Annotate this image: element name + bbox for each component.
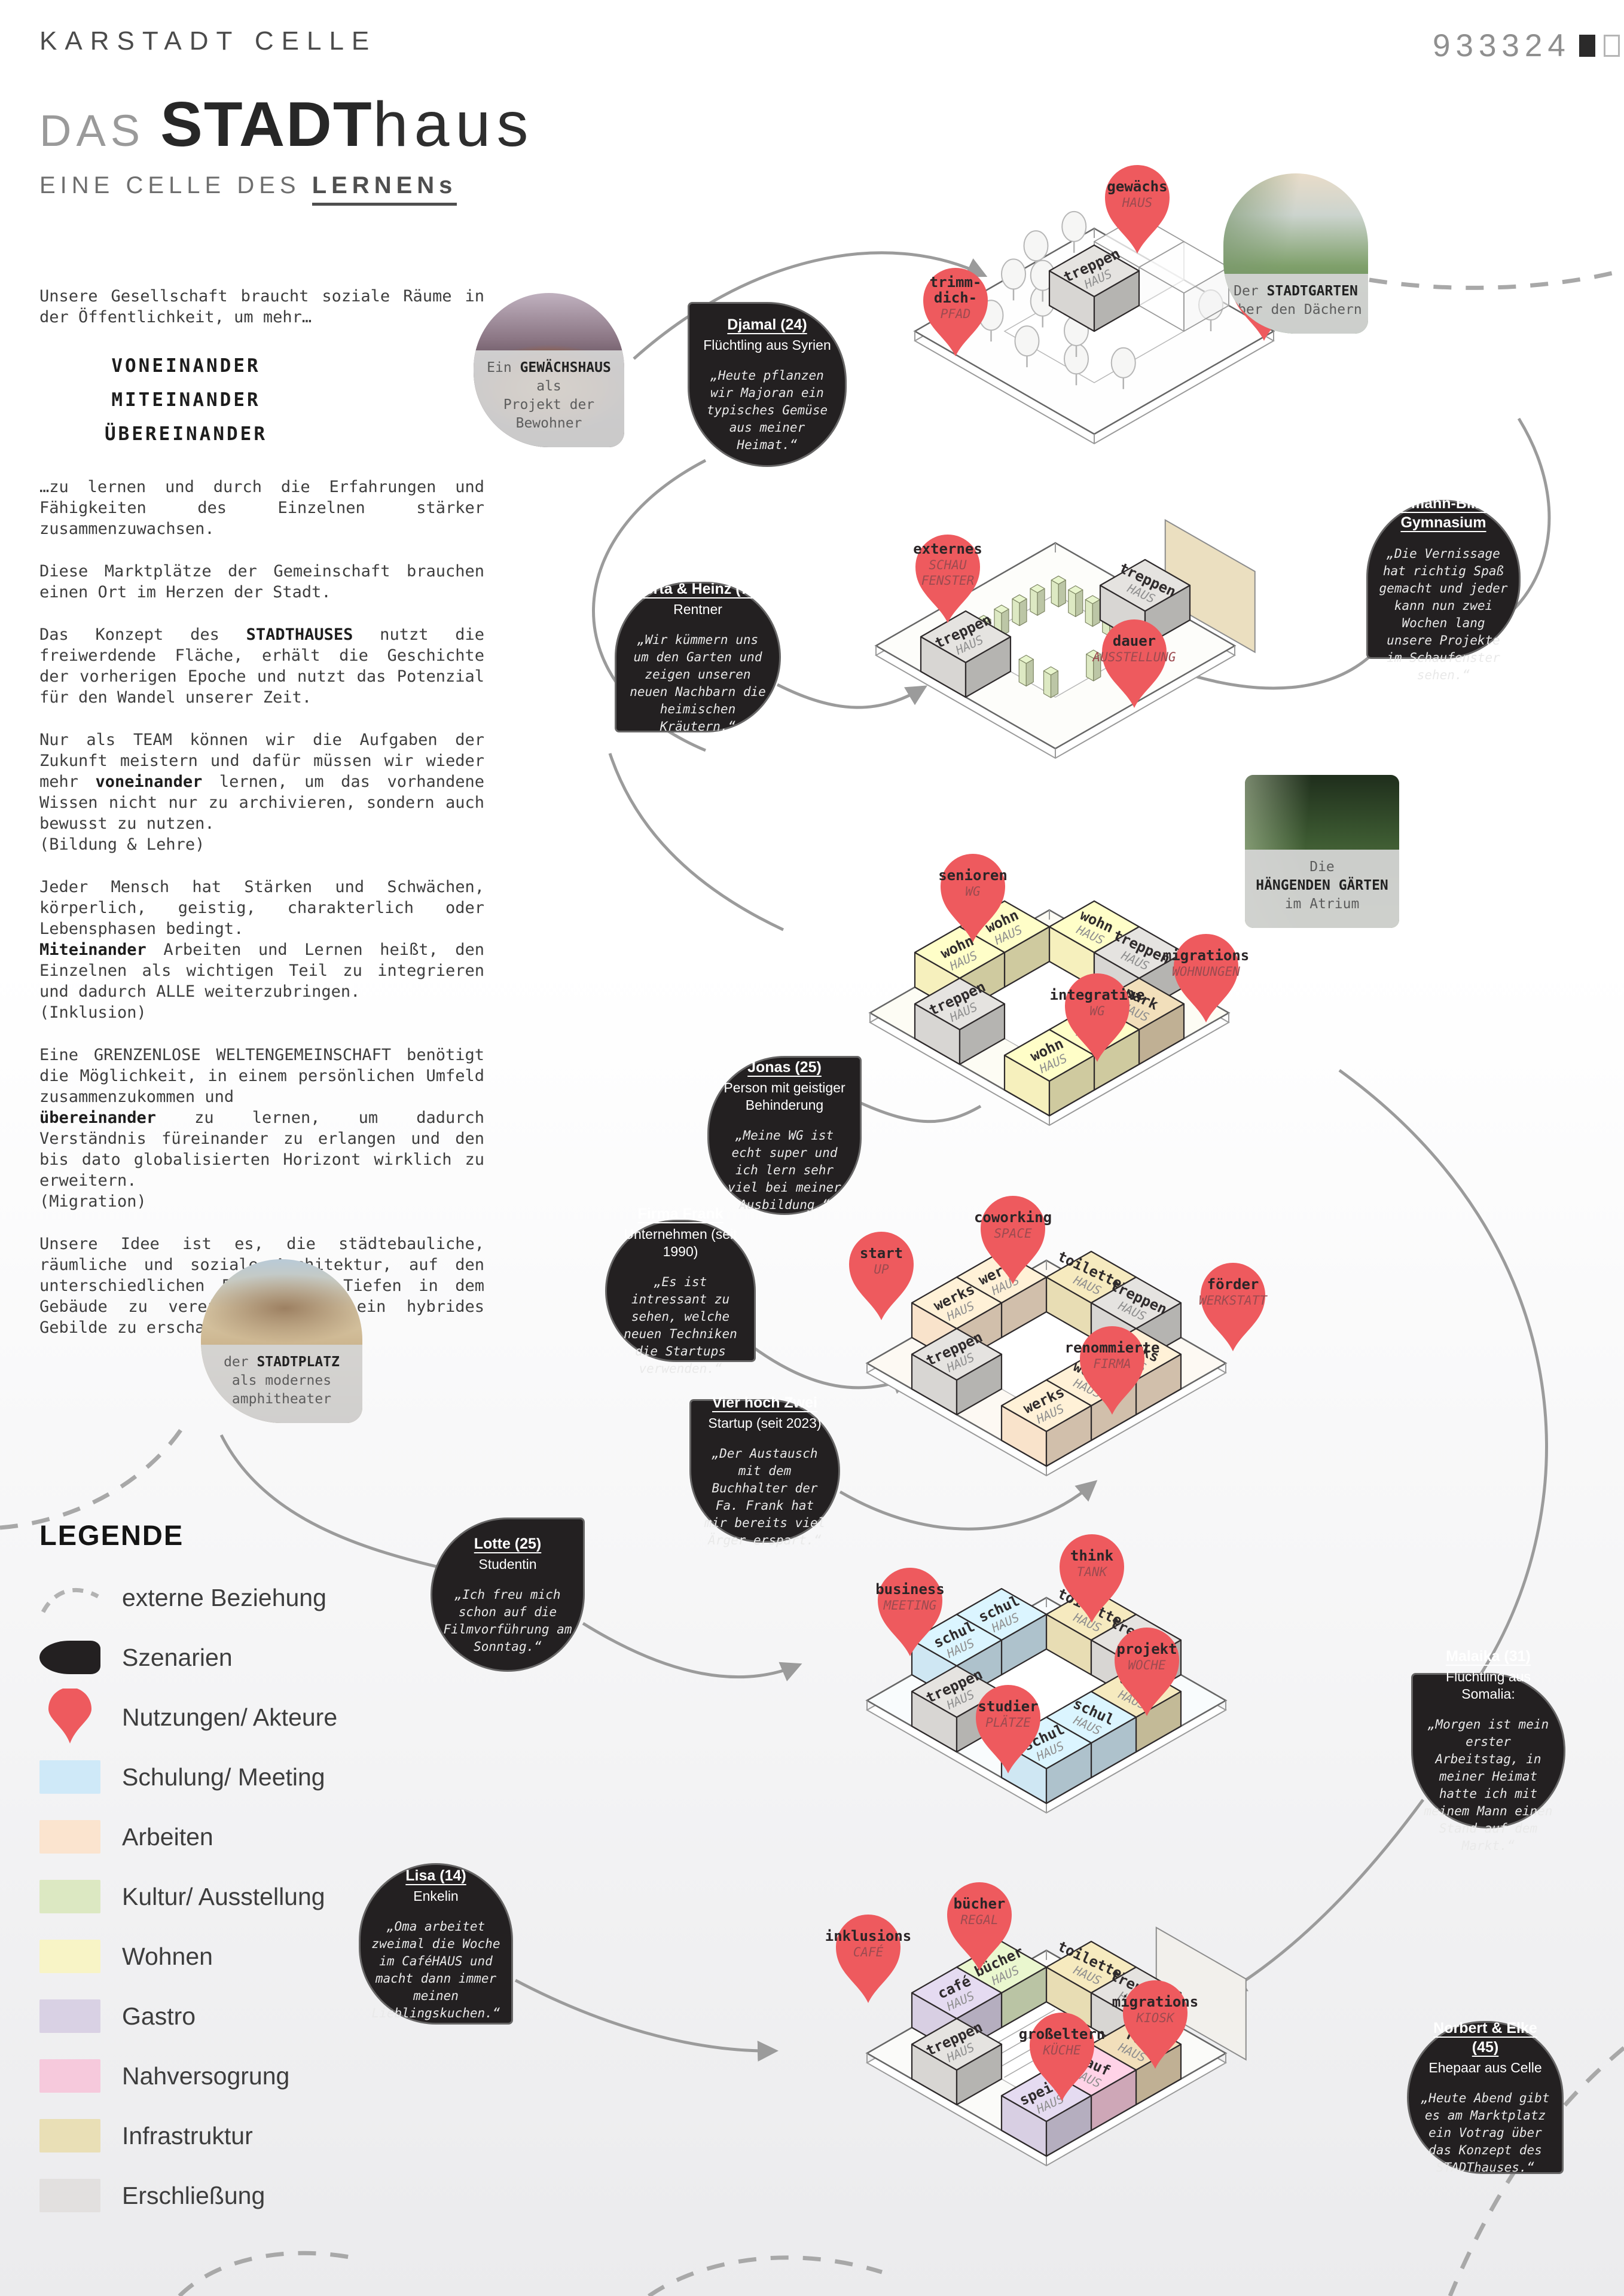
legend-label: Gastro <box>122 2002 196 2031</box>
photo-stadtgarten: Der STADTGARTEN über den Dächern <box>1223 173 1368 334</box>
svg-text:HAUS: HAUS <box>1122 196 1153 210</box>
exhibition-panel <box>1019 599 1027 626</box>
bubble-person-role: Rentner <box>673 601 722 618</box>
bubble-quote: „Ich freu mich schon auf die Filmvorführ… <box>442 1586 573 1656</box>
svg-text:externes: externes <box>913 541 982 557</box>
bubble-person-role: Studentin <box>478 1556 536 1573</box>
svg-text:bücher: bücher <box>954 1895 1006 1912</box>
intro-paragraph: Unsere Gesellschaft braucht soziale Räum… <box>39 286 484 328</box>
legend-title: LEGENDE <box>39 1519 337 1552</box>
bubble-person-role: Person mit geistiger Behinderung <box>719 1079 850 1114</box>
svg-text:WERKSTATT: WERKSTATT <box>1199 1293 1268 1308</box>
intro-text: Unsere Gesellschaft braucht soziale Räum… <box>39 286 484 1360</box>
intro-paragraph: Jeder Mensch hat Stärken und Schwächen, … <box>39 877 484 1023</box>
intro-paragraph: Nur als TEAM können wir die Aufgaben der… <box>39 729 484 855</box>
legend-scenario-blob-icon <box>39 1641 100 1674</box>
legend-label: externe Beziehung <box>122 1584 326 1612</box>
legend-color-swatch <box>39 2059 100 2093</box>
bubble-person-name: Lotte (25) <box>474 1534 542 1553</box>
intro-paragraph: Diese Marktplätze der Gemeinschaft brauc… <box>39 561 484 603</box>
svg-text:projekt: projekt <box>1116 1641 1177 1657</box>
scenario-bubble-jonas: Jonas (25)Person mit geistiger Behinderu… <box>707 1056 862 1215</box>
photo-haengende-gaerten: Die HÄNGENDEN GÄRTEN im Atrium <box>1245 775 1399 928</box>
svg-text:TANK: TANK <box>1077 1565 1108 1579</box>
connector-dashed <box>179 2253 350 2296</box>
legend-color-swatch <box>39 1999 100 2033</box>
svg-text:großeltern: großeltern <box>1019 2026 1106 2042</box>
exhibition-panel <box>1026 660 1033 686</box>
photo-gewaechshaus: Ein GEWÄCHSHAUS als Projekt der Bewohner <box>474 293 624 447</box>
legend-row-5: Kultur/ Ausstellung <box>39 1879 337 1914</box>
legend-color-swatch <box>39 1940 100 1973</box>
intro-keywords: VONEINANDERMITEINANDERÜBEREINANDER <box>39 349 332 451</box>
legend-dashed-line-icon <box>39 1578 100 1617</box>
exhibition-panel <box>1092 600 1100 627</box>
exhibition-panel <box>1051 580 1058 607</box>
svg-text:WG: WG <box>965 884 981 899</box>
bubble-quote: „Morgen ist mein erster Arbeitstag, in m… <box>1422 1716 1554 1855</box>
svg-text:think: think <box>1070 1547 1114 1564</box>
connector-solid <box>610 753 783 930</box>
intro-paragraph: Eine GRENZENLOSE WELTENGEMEINSCHAFT benö… <box>39 1045 484 1212</box>
legend-color-swatch <box>39 1820 100 1854</box>
svg-text:business: business <box>875 1581 945 1598</box>
bubble-person-role: Flüchtling aus Syrien <box>703 337 831 354</box>
tree <box>1024 231 1048 261</box>
svg-text:KÜCHE: KÜCHE <box>1042 2042 1081 2057</box>
bubble-person-name: Norbert & Elke (45) <box>1418 2019 1552 2057</box>
svg-text:FENSTER: FENSTER <box>921 573 975 588</box>
exhibition-panel <box>1037 588 1045 615</box>
exhibition-panel <box>1044 671 1051 698</box>
svg-text:WG: WG <box>1089 1004 1105 1018</box>
connector-solid <box>1339 1070 1546 1680</box>
photo-stadtgarten-caption: Der STADTGARTEN über den Dächern <box>1223 274 1368 334</box>
svg-text:renommierte: renommierte <box>1065 1339 1160 1356</box>
photo-stadtplatz: der STADTPLATZ als modernes amphitheater <box>201 1259 362 1423</box>
svg-text:migrations: migrations <box>1112 1993 1199 2010</box>
bubble-person-role: Ehepaar aus Celle <box>1428 2059 1541 2077</box>
legend-row-1: Szenarien <box>39 1640 337 1675</box>
legend-label: Erschließung <box>122 2182 265 2210</box>
legend-items: externe BeziehungSzenarienNutzungen/ Akt… <box>39 1580 337 2213</box>
intro-paragraph: Das Konzept des STADTHAUSES nutzt die fr… <box>39 624 484 708</box>
svg-text:coworking: coworking <box>974 1209 1052 1226</box>
bubble-quote: „Der Austausch mit dem Buchhalter der Fa… <box>701 1445 829 1549</box>
svg-text:PFAD: PFAD <box>941 307 971 321</box>
svg-text:UP: UP <box>874 1262 889 1277</box>
svg-text:SPACE: SPACE <box>994 1226 1032 1241</box>
svg-text:inklusions: inklusions <box>825 1928 912 1944</box>
svg-text:PLÄTZE: PLÄTZE <box>985 1715 1031 1730</box>
exhibition-panel <box>1069 590 1076 617</box>
scenario-bubble-firma_frank: Firma FrankUnternehmen (seit 1990)„Es is… <box>605 1220 756 1362</box>
svg-text:AUSSTELLUNG: AUSSTELLUNG <box>1091 650 1176 664</box>
bubble-person-role: Startup (seit 2023) <box>708 1415 821 1432</box>
exhibition-panel <box>1058 580 1066 607</box>
bubble-person-name: Malaika (31) <box>1446 1647 1531 1666</box>
svg-text:trimm-: trimm- <box>930 274 982 291</box>
exhibition-panel <box>1076 590 1083 617</box>
connector-dashed <box>649 2258 882 2296</box>
legend-row-3: Schulung/ Meeting <box>39 1760 337 1794</box>
svg-text:dauer: dauer <box>1113 633 1156 649</box>
map-pin-start: startUP <box>849 1232 914 1320</box>
bubble-person-name: Lisa (14) <box>405 1866 466 1885</box>
legend-color-swatch <box>39 1760 100 1794</box>
scenario-bubble-lotte: Lotte (25)Studentin„Ich freu mich schon … <box>431 1518 585 1672</box>
exhibition-panel <box>1085 600 1092 627</box>
bubble-person-name: Djamal (24) <box>727 315 807 334</box>
svg-text:integrative: integrative <box>1050 987 1145 1003</box>
bubble-quote: „Meine WG ist echt super und ich lern se… <box>719 1127 850 1214</box>
connector-dashed <box>1369 270 1624 288</box>
svg-text:FIRMA: FIRMA <box>1093 1357 1131 1371</box>
svg-text:WOHNUNGEN: WOHNUNGEN <box>1172 964 1240 979</box>
exhibition-panel <box>1051 671 1058 698</box>
exhibition-panel <box>1030 588 1037 615</box>
legend-label: Infrastruktur <box>122 2122 253 2150</box>
map-pin-frder: förderWERKSTATT <box>1199 1263 1268 1351</box>
map-pin-inklusions: inklusionsCAFÉ <box>825 1915 912 2003</box>
bubble-quote: „Es ist intressant zu sehen, welche neue… <box>616 1274 744 1378</box>
legend-color-swatch <box>39 2119 100 2152</box>
legend-row-2: Nutzungen/ Akteure <box>39 1700 337 1735</box>
intro-paragraph: …zu lernen und durch die Erfahrungen und… <box>39 477 484 539</box>
scenario-bubble-gerta: Gerta & Heinz (72)Rentner„Wir kümmern un… <box>615 582 781 732</box>
svg-text:start: start <box>860 1245 903 1262</box>
svg-text:gewächs: gewächs <box>1107 178 1167 195</box>
scenario-bubble-klasse7a: Klasse 7a, Herrmann-Billung Gymnasium„Di… <box>1366 500 1521 659</box>
floor-diagram-arbeiten: toilettenHAUSwerksHAUSwerksHAUStreppenHA… <box>759 1189 1333 1547</box>
svg-text:REGAL: REGAL <box>960 1913 998 1927</box>
legend-label: Kultur/ Ausstellung <box>122 1883 325 1911</box>
bubble-quote: „Heute pflanzen wir Majoran ein typische… <box>699 367 835 454</box>
legend-row-4: Arbeiten <box>39 1819 337 1854</box>
legend: LEGENDE externe BeziehungSzenarienNutzun… <box>39 1519 337 2238</box>
legend-label: Nahversogrung <box>122 2062 289 2090</box>
poster-board: KARSTADT CELLE 933324 DASSTADThaus EINE … <box>0 0 1624 2296</box>
tree <box>1002 259 1025 289</box>
legend-color-swatch <box>39 2179 100 2212</box>
svg-text:senioren: senioren <box>938 867 1008 884</box>
scenario-bubble-malaika: Malaika (31)Flüchtling aus Somalia:„Morg… <box>1411 1673 1565 1828</box>
connector-dashed <box>0 1423 185 1528</box>
legend-label: Schulung/ Meeting <box>122 1763 325 1791</box>
legend-label: Wohnen <box>122 1943 213 1971</box>
svg-text:studier: studier <box>978 1698 1038 1715</box>
tree <box>1112 348 1135 378</box>
legend-map-pin-icon <box>39 1689 100 1746</box>
svg-text:CAFÉ: CAFÉ <box>853 1944 884 1959</box>
svg-text:KIOSK: KIOSK <box>1135 2011 1175 2025</box>
exhibition-panel <box>1019 660 1026 686</box>
legend-row-8: Nahversogrung <box>39 2059 337 2093</box>
legend-row-10: Erschließung <box>39 2178 337 2213</box>
connector-solid <box>515 1980 774 2051</box>
floor-diagram-erdgeschoss: toilettenHAUSbücherHAUScaféHAUStreppenHA… <box>759 1879 1333 2237</box>
scenario-bubble-norbert: Norbert & Elke (45)Ehepaar aus Celle„Heu… <box>1407 2021 1564 2174</box>
bubble-quote: „Wir kümmern uns um den Garten und zeige… <box>626 631 770 735</box>
legend-row-0: externe Beziehung <box>39 1580 337 1615</box>
bubble-person-name: Klasse 7a, Herrmann-Billung Gymnasium <box>1378 475 1509 532</box>
svg-text:SCHAU: SCHAU <box>929 558 967 572</box>
bubble-person-role: Enkelin <box>413 1888 458 1905</box>
bubble-quote: „Oma arbeitet zweimal die Woche im CaféH… <box>370 1918 502 2022</box>
bubble-quote: „Die Vernissage hat richtig Spaß gemacht… <box>1378 545 1509 684</box>
svg-text:MEETING: MEETING <box>883 1598 937 1613</box>
bubble-person-name: Jonas (25) <box>747 1058 822 1077</box>
exhibition-panel <box>1012 599 1019 626</box>
bubble-person-name: Vier hoch Zwei <box>712 1393 817 1412</box>
bubble-quote: „Heute Abend gibt es am Marktplatz ein V… <box>1418 2090 1552 2176</box>
svg-text:migrations: migrations <box>1163 947 1250 964</box>
legend-row-6: Wohnen <box>39 1939 337 1974</box>
bubble-person-name: Firma Frank <box>637 1204 723 1223</box>
scenario-bubble-vier_hoch_zwei: Vier hoch ZweiStartup (seit 2023)„Der Au… <box>689 1399 840 1543</box>
photo-stadtplatz-caption: der STADTPLATZ als modernes amphitheater <box>201 1345 362 1423</box>
svg-text:förder: förder <box>1207 1276 1259 1293</box>
legend-row-9: Infrastruktur <box>39 2118 337 2153</box>
legend-row-7: Gastro <box>39 1999 337 2034</box>
svg-text:WOCHE: WOCHE <box>1128 1658 1166 1672</box>
photo-gewaechshaus-caption: Ein GEWÄCHSHAUS als Projekt der Bewohner <box>474 350 624 447</box>
scenario-bubble-lisa: Lisa (14)Enkelin„Oma arbeitet zweimal di… <box>359 1863 513 2025</box>
svg-text:dich-: dich- <box>934 289 977 306</box>
bubble-person-role: Unternehmen (seit 1990) <box>616 1226 744 1260</box>
tree <box>1062 212 1086 242</box>
photo-haengende-gaerten-caption: Die HÄNGENDEN GÄRTEN im Atrium <box>1245 850 1399 928</box>
floor-diagram-schulung-meeting: toilettenHAUSschulHAUSschulHAUStreppenHA… <box>759 1526 1333 1885</box>
tree <box>1015 326 1039 356</box>
bubble-person-name: Gerta & Heinz (72) <box>633 579 762 599</box>
bubble-person-role: Flüchtling aus Somalia: <box>1422 1668 1554 1703</box>
legend-label: Szenarien <box>122 1644 233 1672</box>
legend-label: Arbeiten <box>122 1823 213 1851</box>
legend-label: Nutzungen/ Akteure <box>122 1703 337 1732</box>
scenario-bubble-djamal: Djamal (24)Flüchtling aus Syrien„Heute p… <box>688 302 847 467</box>
legend-color-swatch <box>39 1880 100 1913</box>
